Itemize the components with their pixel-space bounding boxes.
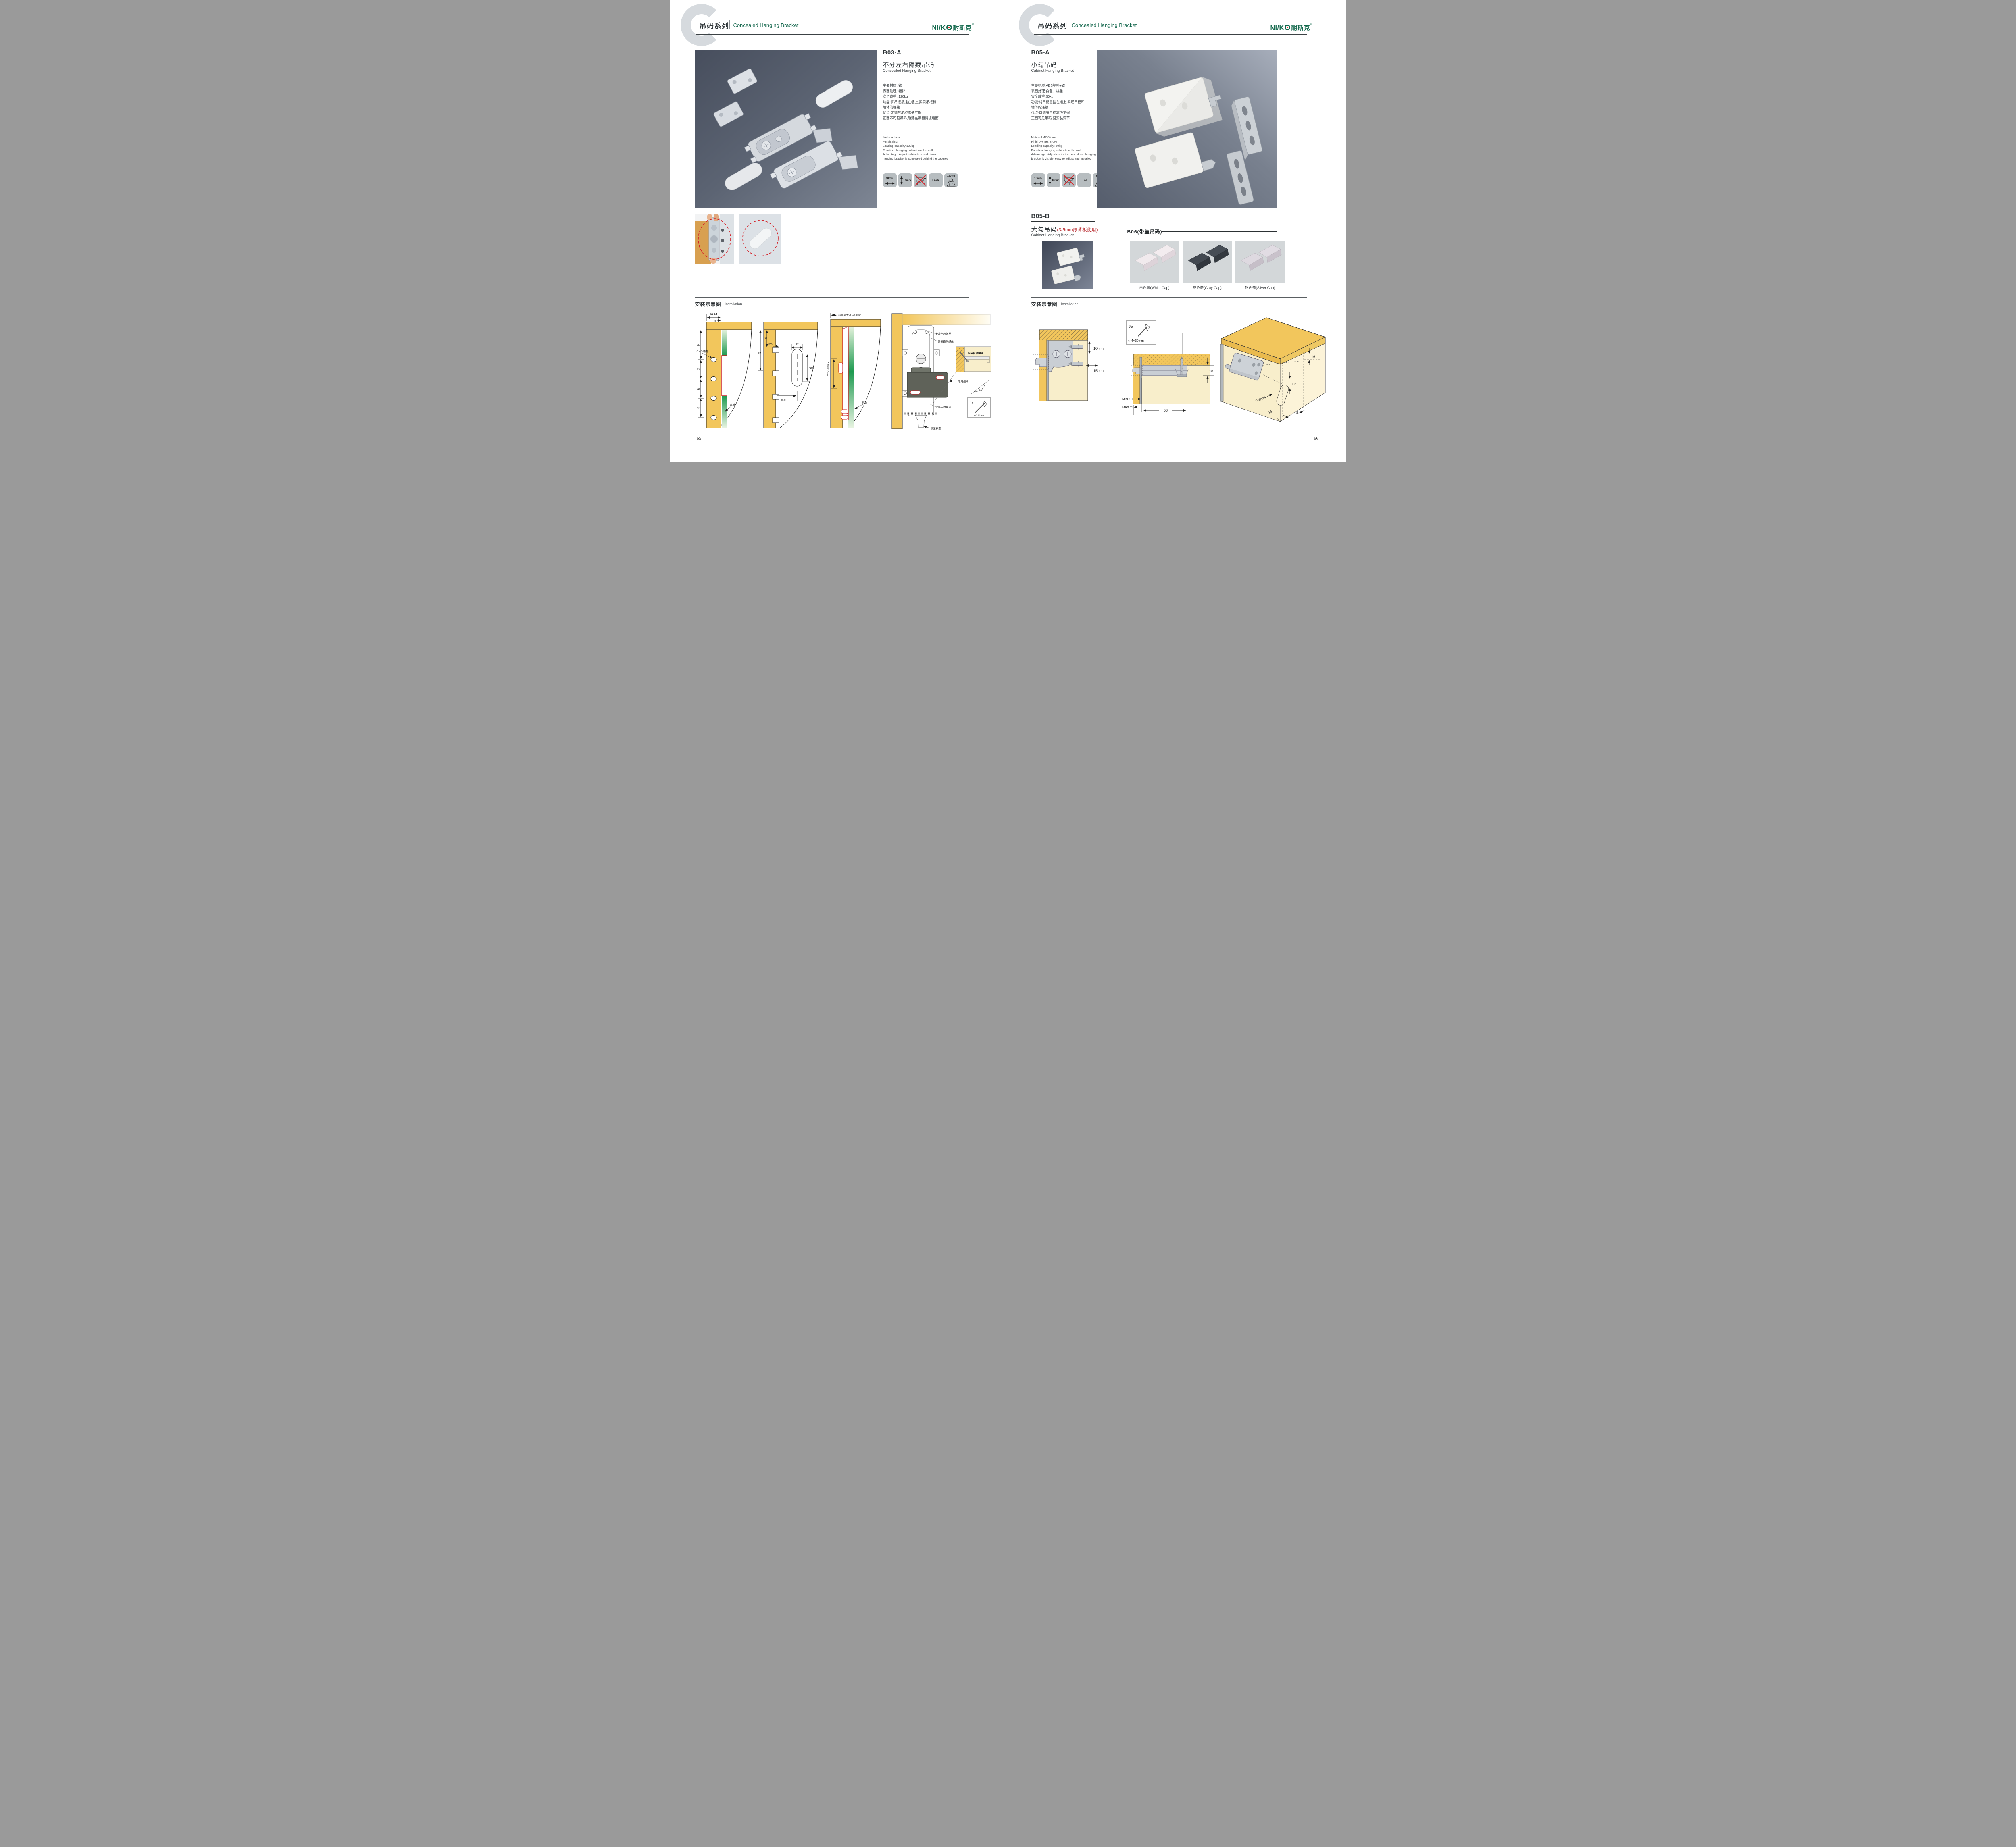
header-rule [1034, 34, 1307, 35]
logo-o-icon [1285, 25, 1290, 30]
spec-line: 功能:将吊柜悬挂在墙上,实现吊柜和 [883, 100, 939, 105]
dim-35: 35 [764, 337, 768, 340]
catalog-spread: C 吊码系列 Concealed Hanging Bracket NI/K耐斯克… [670, 0, 1346, 462]
install-diagram-isometric: 16 42 RMAX4 16 17 32 [1218, 314, 1330, 428]
product-note-red: (3-9mm厚背板使用) [1057, 228, 1098, 233]
dim-5: 5 [714, 320, 716, 322]
spec-line: 安全载重: 120kg [883, 94, 939, 100]
cap-caption-gray: 灰色盖(Gray Cap) [1183, 285, 1232, 290]
product-name-en: Cabinet Hanging Brcaket [1031, 233, 1074, 237]
cap-photo-white [1130, 241, 1179, 283]
dim-angle: 45° [979, 389, 983, 392]
product-name-cn: 小勾吊码 [1031, 60, 1057, 69]
label-front-back-adjust: 前后最大调节10mm [838, 313, 861, 317]
panel-height-label: 10mm [904, 179, 911, 182]
brand-logo: NI/K耐斯克® [1270, 23, 1312, 32]
lga-icon: LGA [929, 173, 943, 187]
b06-rule [1161, 231, 1277, 232]
product-code: B05-A [1031, 49, 1050, 56]
logo-registered-mark: ® [1310, 23, 1312, 26]
spec-line: 主要材质:ABS塑料+铁 [1031, 83, 1085, 89]
page-right: C 吊码系列 Concealed Hanging Bracket NI/K耐斯克… [1008, 0, 1346, 462]
spec-line: 主要材质: 铁 [883, 83, 939, 89]
spec-line: 优点:可调节吊柜高低平衡 [1031, 110, 1085, 116]
installation-rule [1031, 297, 1307, 298]
label-screw: 安装自攻螺丝 [935, 405, 952, 409]
feature-icons: 10mm 10mm LGA 120Kg [883, 173, 958, 187]
logo-o-icon [946, 25, 952, 30]
load-capacity-icon: 120Kg [944, 173, 958, 187]
spec-line: Advantage: Adjust cabinet up and down [883, 152, 948, 157]
spec-line: Finish:White, Brown [1031, 140, 1096, 144]
panel-height-label: 10mm [1052, 179, 1060, 182]
dim-12: 12 [796, 343, 799, 346]
logo-cn: 耐斯克 [953, 25, 972, 31]
dim-adjust-vertical: 10mm [1093, 347, 1104, 351]
specs-en: Material:Iron Finish:Zinc Loading capaci… [883, 135, 948, 161]
product-photo-b03a [695, 50, 877, 208]
logo-registered-mark: ® [972, 23, 974, 26]
product-photo-b05b [1042, 241, 1093, 289]
series-title-cn: 吊码系列 [1037, 19, 1070, 31]
spec-line: bracket is visible, easy to adjust and i… [1031, 157, 1096, 161]
panel-height-icon: 10mm [1047, 173, 1060, 187]
panel-width-label: 15mm [1031, 177, 1045, 180]
product-name-cn: 不分左右隐藏吊码 [883, 60, 935, 69]
product-photo-b05a [1097, 50, 1277, 208]
label-screw: 安装自攻螺丝 [938, 339, 954, 343]
installation-rule [695, 297, 969, 298]
label-up-down-adjust: 上下调节10mm [826, 358, 829, 376]
header-divider [729, 20, 730, 29]
dim-58: 58 [1163, 408, 1167, 412]
header-rule [696, 34, 969, 35]
dim-16: 16 [1311, 355, 1315, 359]
dim-18: 18 [1209, 369, 1213, 373]
spec-line: Advantage: Adjust cabinet up and down ha… [1031, 152, 1096, 157]
dim-32: 32 [1294, 410, 1299, 415]
product-name-en: Cabinet Hanging Bracket [1031, 69, 1074, 73]
page-number: 66 [1314, 435, 1319, 441]
logo-cn: 耐斯克 [1291, 25, 1310, 31]
dim-60: 60 [758, 352, 761, 354]
spec-line: Material: ABS+Iron [1031, 135, 1096, 140]
logo-text: NI/K [1270, 25, 1284, 31]
screw-size: Φ 4×30mm [1128, 339, 1144, 343]
cap-photo-silver [1235, 241, 1285, 283]
spec-line: 墙体的连接 [883, 105, 939, 110]
install-diagram-slot: 60 35 12.5 12 42.5 20.5 [758, 311, 823, 431]
page-left: C 吊码系列 Concealed Hanging Bracket NI/K耐斯克… [670, 0, 1008, 462]
spec-line: 表面处理:白色、棕色 [1031, 89, 1085, 94]
no-drill-icon [914, 173, 927, 187]
spec-line: 正面可见吊码,易安装调节 [1031, 116, 1085, 121]
label-locked-state: 锁紧状态 [931, 426, 941, 430]
product-code-b06: B06(带盖吊码) [1127, 228, 1162, 235]
lga-label: LGA [1077, 178, 1091, 182]
dim-16-18: 16-18 [710, 313, 717, 316]
dim-20-5: 20.5 [781, 399, 786, 401]
header-divider [1068, 20, 1068, 29]
spec-line: 表面处理: 镀锌 [883, 89, 939, 94]
install-diagram-bracket-adjust: 10mm 15mm [1031, 318, 1118, 415]
spec-line: Material:Iron [883, 135, 948, 140]
label-holes: 10-4个均布 [695, 349, 708, 353]
thumb-cover-photo [739, 214, 781, 264]
product-name-cn: 大勾吊码(3-9mm厚背板使用) [1031, 225, 1098, 233]
installation-title-en: Installation [725, 302, 742, 306]
install-diagram-bracket-detail: 安装自攻螺丝 安装自攻螺丝 专用挂片 安装自攻螺丝 锁紧状态 安装自攻螺丝 45… [889, 311, 991, 431]
series-title-cn: 吊码系列 [698, 19, 731, 31]
dim-32: 32 [697, 407, 700, 410]
label-backpanel: 背板 [730, 403, 735, 406]
label-hanging-plate: 专用挂片 [958, 379, 968, 383]
product-code: B03-A [883, 49, 902, 56]
spec-line: Finish:Zinc [883, 140, 948, 144]
installation-title-cn: 安装示意图 [1031, 301, 1058, 308]
install-diagram-section-dims: 2x Φ 4×30mm 18 MIN.10 [1122, 318, 1215, 415]
panel-width-icon: 10mm [883, 173, 897, 187]
spec-line: Loading capacity: 60kg [1031, 144, 1096, 148]
screw-qty: 2x [1129, 325, 1133, 329]
label-backpanel: 背板 [862, 400, 868, 404]
lga-icon: LGA [1077, 173, 1091, 187]
product-code: B05-B [1031, 213, 1050, 220]
logo-text: NI/K [932, 25, 946, 31]
label-screw: 安装自攻螺丝 [935, 332, 952, 335]
install-diagram-side-section: 前后最大调节10mm 上下调节10mm 背板 [825, 311, 885, 431]
specs-en: Material: ABS+Iron Finish:White, Brown L… [1031, 135, 1096, 161]
spec-line: 优点:可调节吊柜高低平衡 [883, 110, 939, 116]
thumb-install-photo [695, 214, 734, 264]
spec-line: 正面不可见吊码,隐藏在吊柜背板后面 [883, 116, 939, 121]
spec-line: Function: hanging cabinet on the wall [1031, 148, 1096, 153]
cap-photo-gray [1183, 241, 1232, 283]
dim-min: MIN.10 [1122, 397, 1133, 401]
installation-title-cn: 安装示意图 [695, 301, 721, 308]
brand-logo: NI/K耐斯克® [932, 23, 974, 32]
panel-width-label: 10mm [883, 177, 897, 180]
product-code-rule [1031, 221, 1095, 222]
panel-height-icon: 10mm [898, 173, 912, 187]
specs-cn: 主要材质: 铁 表面处理: 镀锌 安全载重: 120kg 功能:将吊柜悬挂在墙上… [883, 83, 939, 121]
spec-line: 安全载重:60kg [1031, 94, 1085, 100]
dim-adjust-horizontal: 15mm [1093, 369, 1104, 373]
lga-label: LGA [929, 178, 943, 182]
installation-title-en: Installation [1061, 302, 1079, 306]
dim-12-5: 12.5 [768, 343, 773, 346]
spec-line: Function: hanging cabinet on the wall [883, 148, 948, 153]
dim-32: 32 [697, 368, 700, 371]
spec-line: Loading capacity:120kg [883, 144, 948, 148]
cap-caption-silver: 银色盖(Silver Cap) [1235, 285, 1285, 290]
cap-caption-white: 白色盖(White Cap) [1130, 285, 1179, 290]
dim-32: 32 [697, 388, 700, 391]
page-number: 65 [697, 435, 702, 441]
spec-line: 墙体的连接 [1031, 105, 1085, 110]
specs-cn: 主要材质:ABS塑料+铁 表面处理:白色、棕色 安全载重:60kg 功能:将吊柜… [1031, 83, 1085, 121]
label-screw-detail: 安装自攻螺丝 [968, 351, 984, 355]
panel-width-icon: 15mm [1031, 173, 1045, 187]
series-title-en: Concealed Hanging Bracket [732, 22, 800, 29]
dim-42: 42 [1292, 382, 1296, 386]
dim-35: 35 [697, 344, 700, 347]
dim-max: MAX.23 [1122, 406, 1134, 409]
product-name-en: Concealed Hanging Bracket [883, 69, 931, 73]
no-drill-icon [1062, 173, 1076, 187]
screw-diameter: Φ3.5mm [974, 414, 984, 417]
dim-42-5: 42.5 [809, 367, 814, 370]
spec-line: hanging bracket is concealed behind the … [883, 157, 948, 161]
install-diagram-front-holes: 16-18 5 35 32 32 32 10-4个均布 背板 [695, 311, 756, 431]
load-label: 120Kg [944, 175, 958, 177]
screw-qty: 1x [970, 401, 973, 405]
feature-icons: 15mm 10mm LGA 60Kg [1031, 173, 1106, 187]
spec-line: 功能:将吊柜悬挂在墙上,实现吊柜和 [1031, 100, 1085, 105]
series-title-en: Concealed Hanging Bracket [1070, 22, 1138, 29]
